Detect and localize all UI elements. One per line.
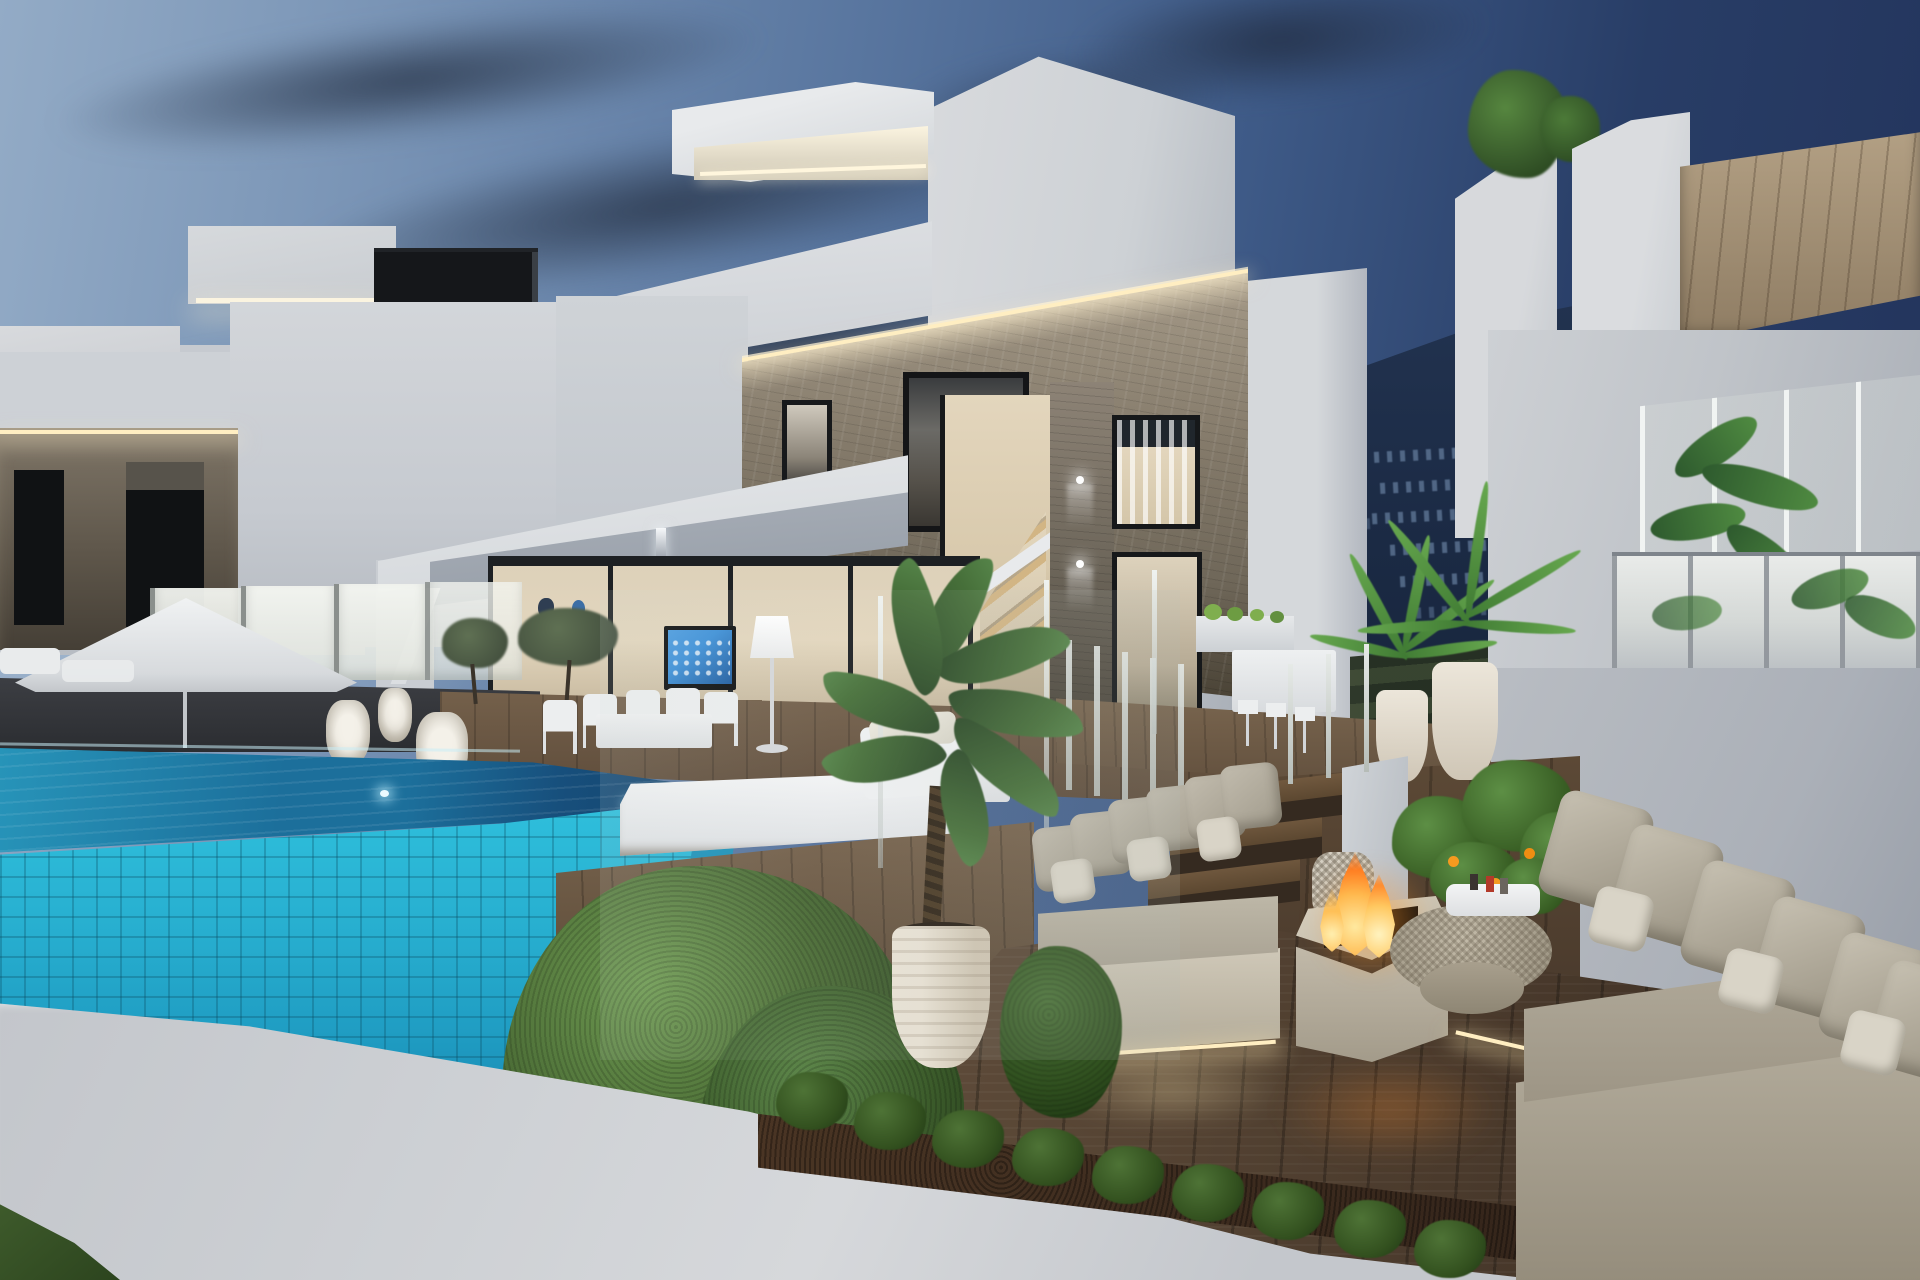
sun-lounger [62,660,134,682]
sun-lounger [0,648,60,674]
wall-light-beam [1067,484,1093,528]
floor-lamp-shade [750,616,794,658]
ribbed-white-plant-pot [892,926,990,1068]
left-villa-roof-box [188,226,396,304]
hedge-plant [1092,1146,1164,1204]
fire-floor-glow [1240,1044,1540,1174]
orange-fruits [1448,856,1459,867]
olive-tree-foliage [442,618,508,668]
glass-post [1288,664,1293,784]
hedge-plant [1252,1182,1324,1240]
tv-app-grid [670,638,730,680]
glass-post [1364,644,1369,772]
olive-tree-foliage [518,608,618,666]
coffee-table-base [1420,962,1524,1014]
frosted-glass-panel [334,584,425,680]
floor-lamp-base [756,744,788,753]
tray-items [1470,874,1478,890]
led-cove-light [0,430,238,434]
glass-post [1152,570,1157,734]
bar-stool [1238,700,1258,746]
stone-pillar [1050,382,1114,706]
wall-washer-light [1076,560,1084,568]
hedge-plant [854,1092,926,1150]
palm-plant-pot [1432,662,1498,780]
wall-washer-light [1076,476,1084,484]
hedge-plant [1334,1200,1406,1258]
planter-shrubs [1204,604,1222,620]
hedge-plant [1172,1164,1244,1222]
serving-tray [1446,884,1540,916]
hedge-plant [932,1110,1004,1168]
dining-chair [543,700,577,754]
floor-lamp-stem [770,658,774,746]
white-planter-box [1196,616,1294,652]
small-hedge-bush [1000,946,1122,1118]
accent-cushion [1125,835,1172,882]
underwater-light [380,790,389,797]
wicker-lantern [378,688,412,742]
bar-stool [1266,703,1286,749]
lit-upper-window [1112,415,1200,529]
glass-post [1326,654,1331,778]
hedge-plant [1414,1220,1486,1278]
wicker-lantern [326,700,370,766]
villa-dusk-rendering [0,0,1920,1280]
wall-light-beam [1067,568,1093,612]
dark-window [14,470,64,625]
canopy-wall-light [656,528,666,558]
glass-post [1094,646,1100,796]
umbrella-pole [183,690,187,748]
glass-post [878,596,883,868]
accent-cushion [1049,857,1096,904]
hedge-plant [1012,1128,1084,1186]
dining-table [596,714,712,748]
accent-cushion [1195,815,1242,862]
hedge-plant [776,1072,848,1130]
bar-stool [1295,707,1315,753]
glass-post [1122,652,1128,800]
